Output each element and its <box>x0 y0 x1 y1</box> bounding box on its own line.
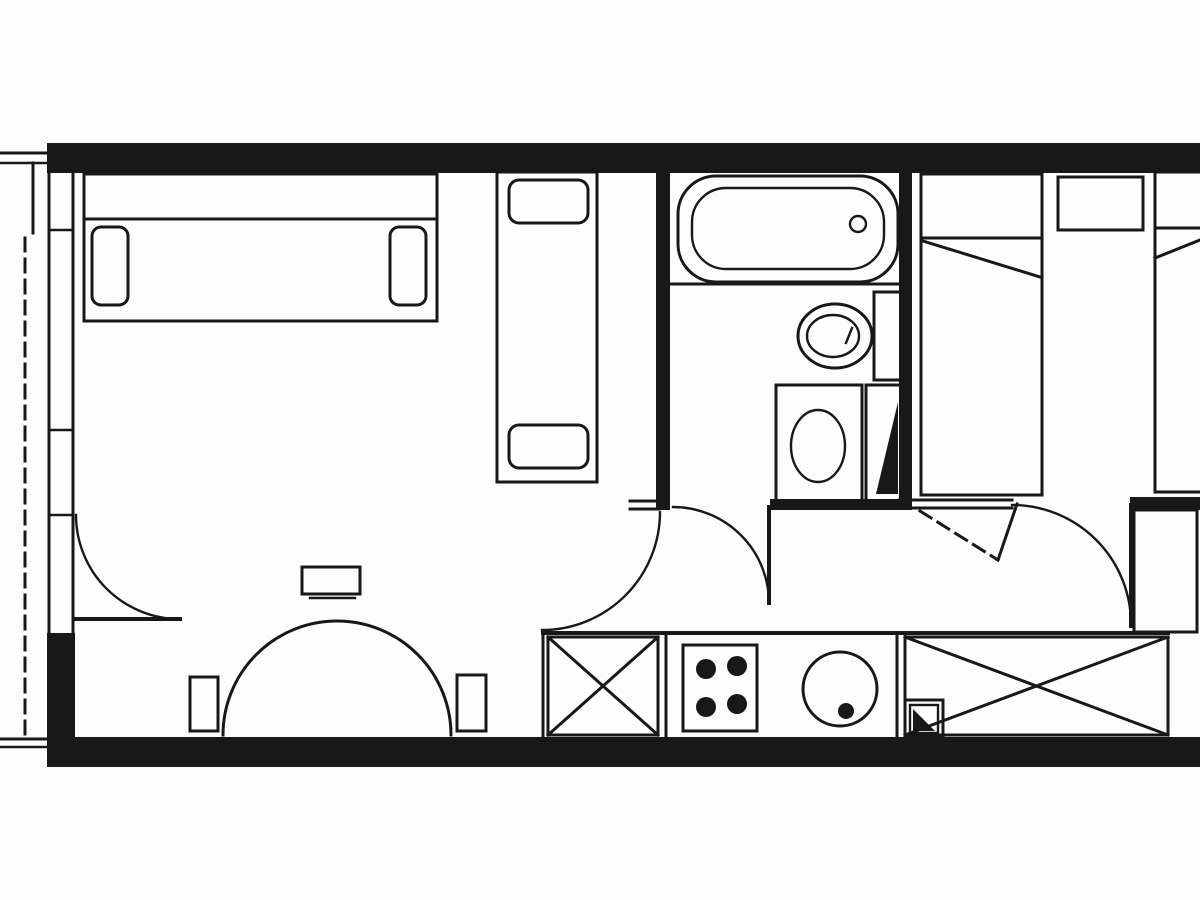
burner <box>727 656 747 676</box>
left-wall-pier <box>47 633 75 741</box>
bedroom-south-wall-right <box>1130 497 1200 510</box>
floor-plan-canvas <box>0 0 1200 900</box>
burner <box>696 697 716 717</box>
bathroom-left-wall <box>656 173 670 510</box>
top-wall <box>47 143 1200 173</box>
bottom-wall <box>47 737 1200 767</box>
sink-drain <box>838 703 854 719</box>
burner <box>696 659 716 679</box>
burner <box>727 694 747 714</box>
